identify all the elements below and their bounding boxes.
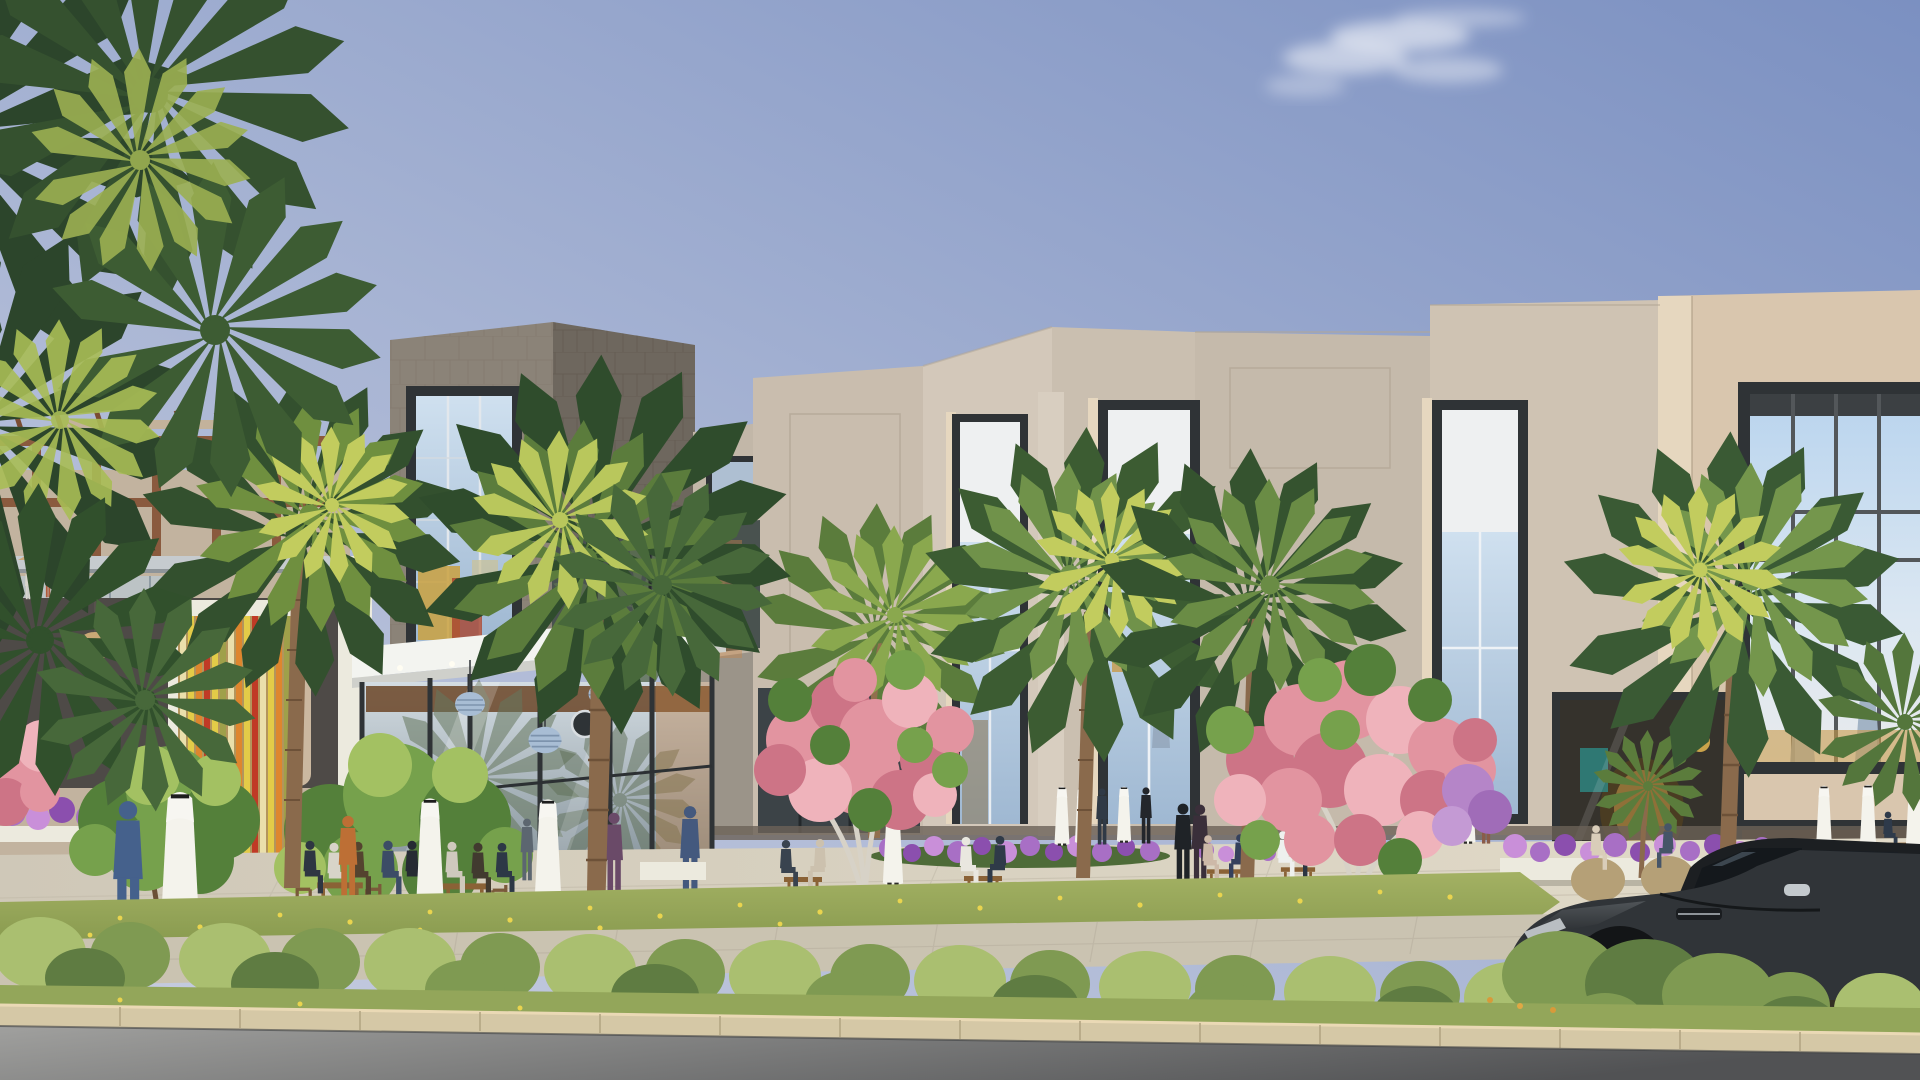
mall-exterior-rendering [0,0,1920,1080]
rendering-canvas [0,0,1920,1080]
white-planter-box [640,862,706,880]
car-mirror [1784,884,1810,896]
